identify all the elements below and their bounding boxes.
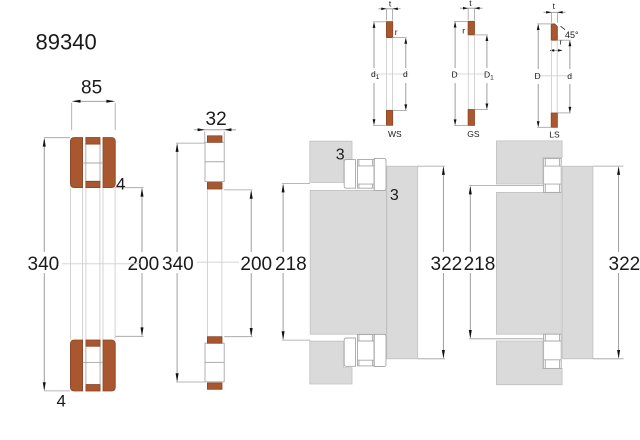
svg-text:340: 340 xyxy=(28,254,60,275)
svg-text:218: 218 xyxy=(275,254,307,275)
svg-text:3: 3 xyxy=(390,187,399,204)
svg-text:85: 85 xyxy=(81,78,102,99)
svg-text:d: d xyxy=(403,69,408,79)
svg-text:322: 322 xyxy=(609,254,640,275)
svg-text:WS: WS xyxy=(388,129,402,139)
svg-text:89340: 89340 xyxy=(36,30,97,55)
svg-text:r: r xyxy=(560,37,563,47)
svg-text:D: D xyxy=(452,70,458,80)
svg-text:LS: LS xyxy=(549,129,560,139)
svg-text:32: 32 xyxy=(206,109,227,130)
svg-text:r: r xyxy=(395,27,398,37)
svg-text:3: 3 xyxy=(336,147,345,164)
svg-text:4: 4 xyxy=(57,392,66,411)
svg-text:340: 340 xyxy=(162,254,194,275)
svg-text:4: 4 xyxy=(116,175,125,194)
svg-text:D: D xyxy=(535,71,541,81)
svg-text:45°: 45° xyxy=(565,30,579,40)
svg-text:r: r xyxy=(462,26,465,36)
svg-text:GS: GS xyxy=(467,129,480,139)
svg-text:d: d xyxy=(567,71,572,81)
svg-text:218: 218 xyxy=(464,254,496,275)
svg-text:322: 322 xyxy=(431,254,463,275)
svg-text:200: 200 xyxy=(128,254,160,275)
svg-text:200: 200 xyxy=(240,254,272,275)
